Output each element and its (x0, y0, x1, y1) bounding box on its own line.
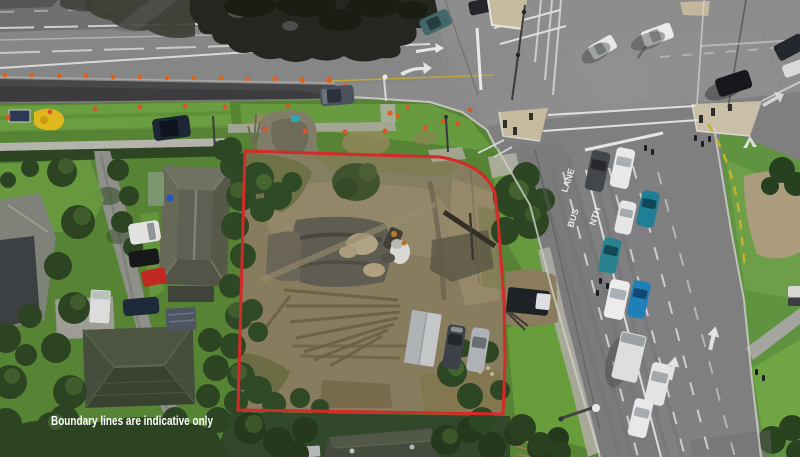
svg-text:Boundary lines are indicative: Boundary lines are indicative only (51, 413, 214, 428)
